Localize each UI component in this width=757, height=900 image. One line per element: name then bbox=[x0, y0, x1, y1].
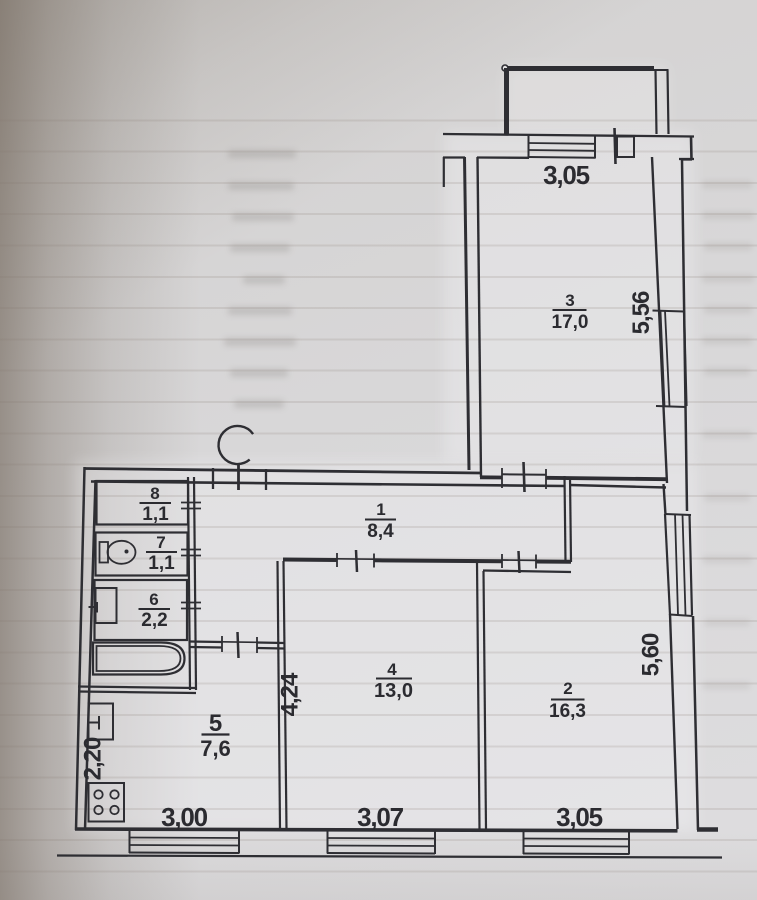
svg-text:17,0: 17,0 bbox=[552, 312, 589, 333]
svg-text:3,07: 3,07 bbox=[357, 802, 404, 832]
svg-text:3: 3 bbox=[565, 291, 574, 310]
svg-text:4,24: 4,24 bbox=[277, 672, 304, 716]
svg-text:7,6: 7,6 bbox=[200, 736, 231, 761]
svg-text:3,00: 3,00 bbox=[161, 802, 208, 832]
svg-text:1: 1 bbox=[376, 500, 385, 519]
svg-text:2: 2 bbox=[563, 679, 572, 698]
svg-text:3,05: 3,05 bbox=[543, 160, 590, 190]
svg-text:7: 7 bbox=[156, 533, 165, 552]
svg-text:4: 4 bbox=[387, 660, 397, 679]
svg-text:5,60: 5,60 bbox=[638, 633, 665, 676]
svg-text:6: 6 bbox=[149, 590, 158, 609]
svg-text:13,0: 13,0 bbox=[374, 680, 413, 702]
svg-text:3,05: 3,05 bbox=[556, 802, 603, 832]
svg-text:5: 5 bbox=[209, 710, 222, 737]
svg-text:2,20: 2,20 bbox=[80, 737, 107, 780]
svg-text:2,2: 2,2 bbox=[141, 610, 167, 631]
svg-text:8,4: 8,4 bbox=[367, 521, 394, 542]
svg-text:1,1: 1,1 bbox=[142, 504, 169, 525]
svg-text:8: 8 bbox=[150, 484, 159, 503]
svg-text:5,56: 5,56 bbox=[628, 291, 655, 334]
svg-text:16,3: 16,3 bbox=[549, 701, 586, 722]
svg-text:1,1: 1,1 bbox=[148, 553, 175, 574]
